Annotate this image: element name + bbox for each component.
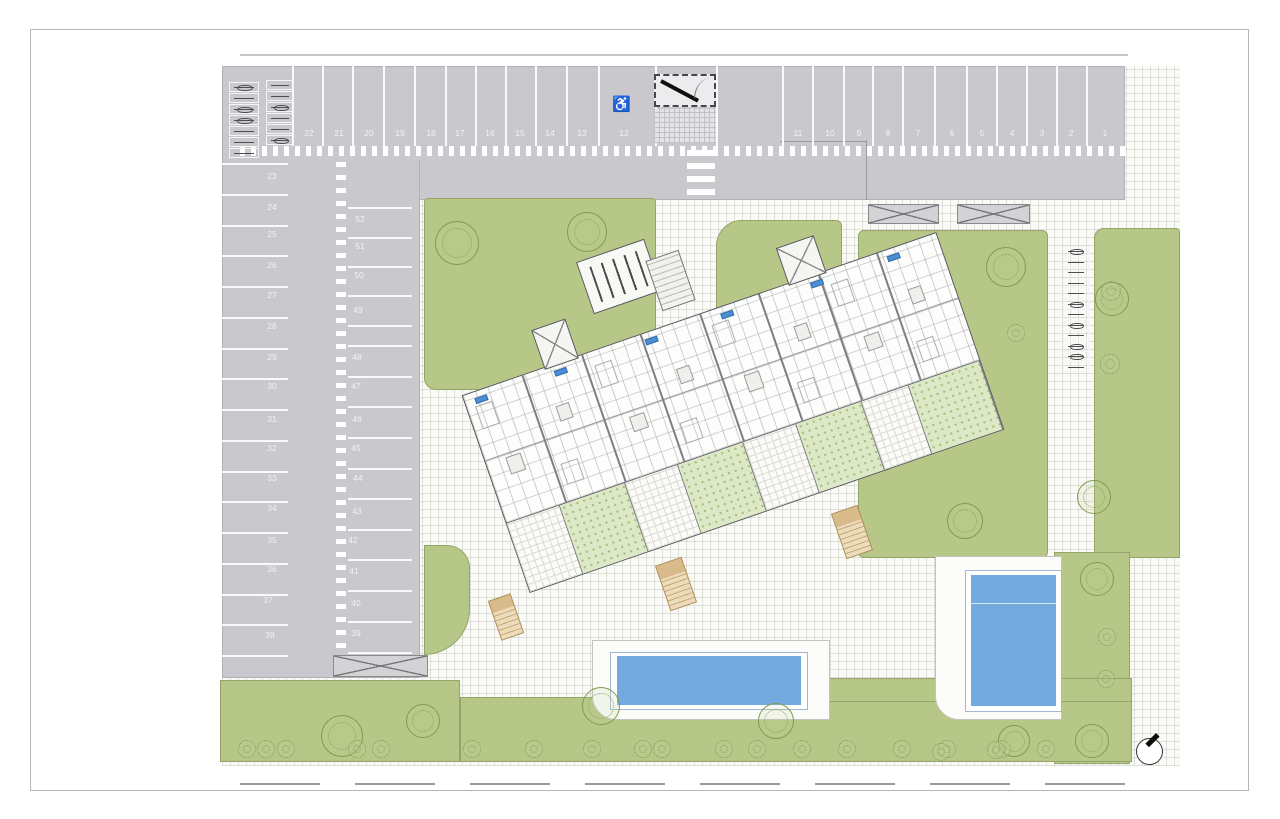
site-plan-drawing: ♿ 22212019181716151413121110987654321 23…: [0, 0, 1280, 819]
sheet-border: [30, 29, 1249, 791]
north-arrow-icon: [1136, 738, 1163, 765]
